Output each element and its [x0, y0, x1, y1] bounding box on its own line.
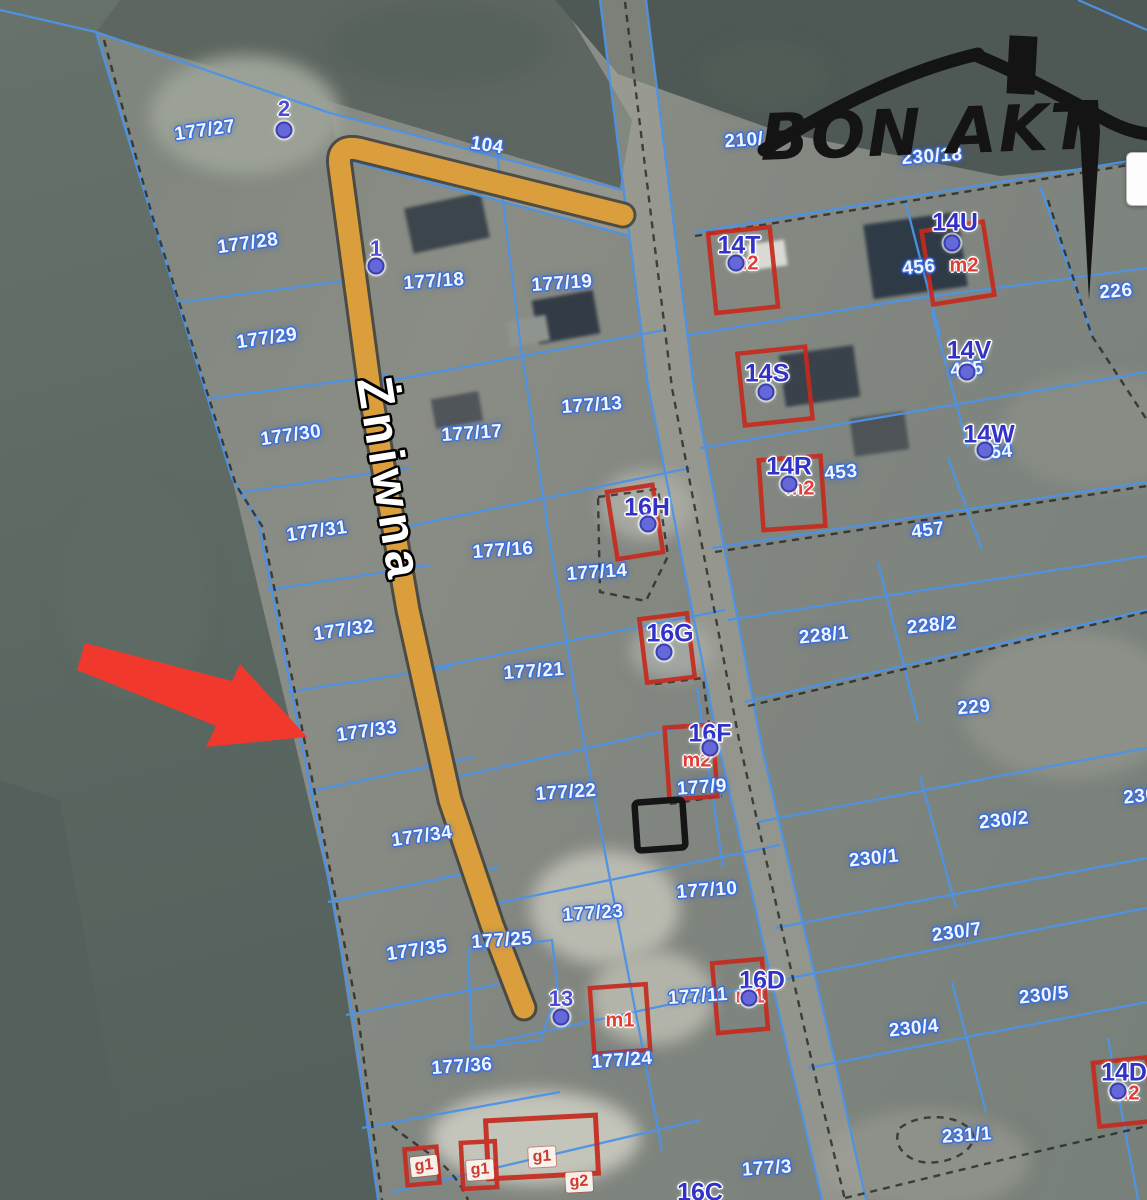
- marker-dot: [553, 1009, 570, 1026]
- map-canvas[interactable]: 177/27104210/230/18177/28177/18177/19456…: [0, 0, 1147, 1200]
- point-marker-number: 2: [278, 96, 290, 122]
- marker-dot: [977, 442, 994, 459]
- marker-dot: [656, 644, 673, 661]
- marker-dot: [1110, 1083, 1127, 1100]
- marker-dot: [276, 122, 293, 139]
- map-control-partial[interactable]: [1126, 152, 1147, 206]
- marker-dot: [944, 235, 961, 252]
- marker-dot: [702, 740, 719, 757]
- marker-dot: [640, 516, 657, 533]
- point-markers-layer: 2113: [0, 0, 1147, 1200]
- marker-dot: [368, 258, 385, 275]
- marker-dot: [741, 990, 758, 1007]
- marker-dot: [959, 364, 976, 381]
- marker-dot: [781, 476, 798, 493]
- marker-dot: [728, 255, 745, 272]
- marker-dot: [758, 384, 775, 401]
